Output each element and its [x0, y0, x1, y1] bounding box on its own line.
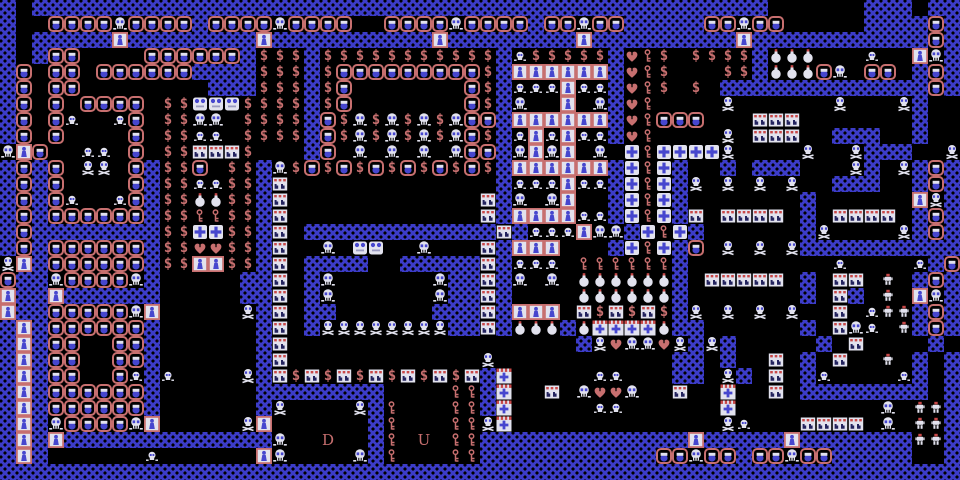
wall-tile: [128, 224, 144, 240]
small-skull: [544, 256, 560, 272]
studded-tile: [752, 128, 768, 144]
potion-bomb: [512, 320, 528, 336]
skull: [512, 96, 528, 112]
wall-tile: [320, 0, 336, 16]
wall-tile: [32, 464, 48, 480]
wall-tile: [496, 320, 512, 336]
small-skull: [736, 416, 752, 432]
monster-face: [768, 448, 784, 464]
floor-tile: [864, 288, 880, 304]
wall-tile: [720, 32, 736, 48]
floor-tile: [144, 144, 160, 160]
key-item: [640, 256, 656, 272]
wall-tile: [128, 32, 144, 48]
monster-face: [16, 192, 32, 208]
wall-tile: [496, 272, 512, 288]
striped-cross-tile: [592, 320, 608, 336]
floor-tile: [912, 0, 928, 16]
cross-tile: [192, 224, 208, 240]
floor-tile: [304, 208, 320, 224]
monster-face: [752, 448, 768, 464]
wall-tile: [864, 80, 880, 96]
floor-tile: [720, 288, 736, 304]
floor-tile: [736, 320, 752, 336]
floor-tile: [160, 320, 176, 336]
locked-door: [48, 432, 64, 448]
wall-tile: [704, 32, 720, 48]
monster-face: [224, 48, 240, 64]
wall-tile: [496, 192, 512, 208]
wall-tile: [864, 128, 880, 144]
wall-tile: [912, 464, 928, 480]
floor-tile: [368, 304, 384, 320]
wall-tile: [752, 32, 768, 48]
floor-tile: [832, 368, 848, 384]
wall-tile: [896, 448, 912, 464]
floor-tile: [736, 112, 752, 128]
studded-tile: [576, 304, 592, 320]
floor-tile: [336, 448, 352, 464]
floor-tile: [560, 368, 576, 384]
wall-tile: [944, 448, 960, 464]
skull-crossbones: [832, 96, 848, 112]
wall-tile: [160, 432, 176, 448]
wall-tile: [640, 448, 656, 464]
key-item: [640, 192, 656, 208]
wall-tile: [736, 432, 752, 448]
monster-face: [128, 192, 144, 208]
wall-tile: [368, 224, 384, 240]
studded-tile: [480, 240, 496, 256]
treasure-money: $: [272, 112, 288, 128]
wall-tile: [592, 432, 608, 448]
skull-crossbones: [320, 320, 336, 336]
floor-tile: [400, 400, 416, 416]
floor-tile: [336, 240, 352, 256]
key-item: [464, 432, 480, 448]
floor-tile: [464, 352, 480, 368]
floor-tile: [896, 352, 912, 368]
wall-tile: [864, 160, 880, 176]
locked-door: [544, 208, 560, 224]
wall-tile: [672, 288, 688, 304]
skull: [640, 336, 656, 352]
wall-tile: [496, 464, 512, 480]
monster-face: [448, 64, 464, 80]
monster-face: [464, 96, 480, 112]
monster-face: [112, 240, 128, 256]
monster-face: [48, 336, 64, 352]
key-item: [448, 384, 464, 400]
floor-tile: [736, 240, 752, 256]
wall-tile: [608, 464, 624, 480]
wall-tile: [256, 160, 272, 176]
wall-tile: [560, 0, 576, 16]
monster-face: [80, 416, 96, 432]
floor-tile: [416, 80, 432, 96]
red-capped-skeleton: [912, 432, 928, 448]
monster-face: [464, 80, 480, 96]
wall-tile: [80, 432, 96, 448]
treasure-money: $: [224, 176, 240, 192]
wall-tile: [448, 288, 464, 304]
floor-tile: [32, 96, 48, 112]
wall-tile: [0, 128, 16, 144]
wall-tile: [496, 208, 512, 224]
wall-tile: [0, 192, 16, 208]
wall-tile: [896, 432, 912, 448]
floor-tile: [224, 400, 240, 416]
wall-tile: [256, 256, 272, 272]
floor-tile: [896, 64, 912, 80]
treasure-money: $: [288, 160, 304, 176]
wall-tile: [304, 48, 320, 64]
skull: [512, 144, 528, 160]
treasure-money: $: [272, 96, 288, 112]
small-skull: [592, 176, 608, 192]
floor-tile: [512, 384, 528, 400]
wall-tile: [608, 432, 624, 448]
wall-tile: [496, 256, 512, 272]
studded-tile: [704, 272, 720, 288]
floor-tile: [832, 160, 848, 176]
monster-face: [96, 400, 112, 416]
locked-door: [560, 96, 576, 112]
wall-tile: [224, 64, 240, 80]
wall-tile: [416, 256, 432, 272]
floor-tile: [560, 416, 576, 432]
floor-tile: [144, 80, 160, 96]
locked-door: [560, 208, 576, 224]
monster-face: [64, 48, 80, 64]
floor-tile: [736, 160, 752, 176]
wall-tile: [432, 0, 448, 16]
monster-face: [96, 304, 112, 320]
studded-tile: [800, 416, 816, 432]
wall-tile: [256, 288, 272, 304]
floor-tile: [752, 144, 768, 160]
cross-tile: [624, 176, 640, 192]
wall-tile: [32, 176, 48, 192]
wall-tile: [496, 448, 512, 464]
monster-face: [400, 160, 416, 176]
monster-face: [48, 240, 64, 256]
small-skull: [864, 320, 880, 336]
floor-tile: [704, 176, 720, 192]
floor-tile: [720, 112, 736, 128]
heart-food: [624, 96, 640, 112]
floor-tile: [96, 112, 112, 128]
floor-tile: [336, 352, 352, 368]
wall-tile: [96, 432, 112, 448]
potion-bomb: [608, 272, 624, 288]
floor-tile: [192, 320, 208, 336]
skull-crossbones: [352, 400, 368, 416]
floor-tile: [864, 400, 880, 416]
wall-tile: [944, 384, 960, 400]
wall-tile: [496, 32, 512, 48]
floor-tile: [928, 448, 944, 464]
skull: [272, 448, 288, 464]
wall-tile: [224, 80, 240, 96]
wall-tile: [0, 48, 16, 64]
monster-face: [96, 384, 112, 400]
floor-tile: [288, 336, 304, 352]
key-item: [384, 432, 400, 448]
floor-tile: [688, 192, 704, 208]
wall-tile: [32, 320, 48, 336]
studded-tile: [848, 208, 864, 224]
treasure-money: $: [160, 256, 176, 272]
potion-bomb: [624, 272, 640, 288]
wall-tile: [32, 0, 48, 16]
wall-tile: [672, 192, 688, 208]
wall-tile: [656, 464, 672, 480]
potion-bomb: [576, 288, 592, 304]
floor-tile: [704, 112, 720, 128]
floor-tile: [336, 400, 352, 416]
wall-tile: [400, 256, 416, 272]
locked-door: [256, 448, 272, 464]
floor-tile: [368, 352, 384, 368]
wall-tile: [816, 432, 832, 448]
game-board[interactable]: $$$$$$$$$$$$$$$$$$$$$$$$$$$$$$$$$$$$$$$$…: [0, 0, 960, 480]
wall-tile: [464, 464, 480, 480]
wall-tile: [336, 256, 352, 272]
potion-bomb: [768, 64, 784, 80]
wall-tile: [144, 208, 160, 224]
cross-tile: [688, 144, 704, 160]
floor-tile: [848, 368, 864, 384]
wall-tile: [912, 96, 928, 112]
wall-tile: [672, 432, 688, 448]
locked-door: [512, 160, 528, 176]
floor-tile: [480, 176, 496, 192]
monster-face: [336, 64, 352, 80]
wall-tile: [448, 320, 464, 336]
studded-tile: [480, 256, 496, 272]
floor-tile: [560, 256, 576, 272]
floor-tile: [592, 416, 608, 432]
floor-tile: [720, 256, 736, 272]
monster-face: [352, 64, 368, 80]
treasure-money: $: [240, 208, 256, 224]
wall-tile: [800, 288, 816, 304]
wall-tile: [688, 16, 704, 32]
monster-face: [48, 80, 64, 96]
wall-tile: [160, 464, 176, 480]
treasure-money: $: [576, 48, 592, 64]
wall-tile: [496, 96, 512, 112]
monster-face: [64, 368, 80, 384]
monster-face: [432, 16, 448, 32]
wall-tile: [816, 336, 832, 352]
floor-tile: [880, 256, 896, 272]
wall-tile: [496, 176, 512, 192]
floor-tile: [480, 336, 496, 352]
small-skull: [912, 256, 928, 272]
wall-tile: [304, 304, 320, 320]
floor-tile: [720, 320, 736, 336]
floor-tile: [864, 112, 880, 128]
wall-tile: [608, 448, 624, 464]
monster-face: [112, 96, 128, 112]
locked-door: [16, 400, 32, 416]
floor-tile: [160, 384, 176, 400]
floor-tile: [336, 272, 352, 288]
small-skull: [576, 208, 592, 224]
treasure-money: $: [736, 64, 752, 80]
wall-tile: [272, 384, 288, 400]
skull-crossbones: [896, 96, 912, 112]
wall-tile: [544, 464, 560, 480]
wall-tile: [304, 144, 320, 160]
locked-door: [208, 256, 224, 272]
floor-tile: [768, 176, 784, 192]
floor-tile: [848, 16, 864, 32]
striped-cross-tile: [608, 320, 624, 336]
floor-tile: [704, 320, 720, 336]
skull: [512, 272, 528, 288]
wall-tile: [672, 352, 688, 368]
skull-crossbones: [720, 240, 736, 256]
locked-door: [528, 64, 544, 80]
cross-tile: [656, 208, 672, 224]
wall-tile: [144, 176, 160, 192]
monster-face: [48, 192, 64, 208]
treasure-money: $: [176, 224, 192, 240]
skull-crossbones: [928, 192, 944, 208]
studded-tile: [272, 240, 288, 256]
floor-tile: [320, 208, 336, 224]
wall-tile: [800, 224, 816, 240]
floor-tile: [528, 336, 544, 352]
wall-tile: [32, 432, 48, 448]
locked-door: [16, 448, 32, 464]
skull-crossbones: [480, 352, 496, 368]
floor-tile: [560, 352, 576, 368]
treasure-money: $: [224, 192, 240, 208]
potion-bomb: [784, 48, 800, 64]
wall-tile: [368, 384, 384, 400]
wall-tile: [304, 320, 320, 336]
wall-tile: [144, 32, 160, 48]
key-item: [448, 416, 464, 432]
wall-tile: [336, 464, 352, 480]
skull: [928, 288, 944, 304]
studded-tile: [848, 336, 864, 352]
wall-tile: [144, 256, 160, 272]
floor-tile: [544, 352, 560, 368]
monster-face: [112, 64, 128, 80]
treasure-money: $: [256, 80, 272, 96]
wall-tile: [304, 224, 320, 240]
floor-tile: [112, 160, 128, 176]
wall-tile: [800, 208, 816, 224]
floor-tile: [304, 352, 320, 368]
wall-tile: [704, 0, 720, 16]
locked-door: [528, 160, 544, 176]
floor-tile: [880, 336, 896, 352]
monster-face: [464, 160, 480, 176]
monster-face: [80, 304, 96, 320]
skull: [208, 112, 224, 128]
floor-tile: [32, 80, 48, 96]
wall-tile: [736, 0, 752, 16]
potion-bomb: [592, 288, 608, 304]
floor-tile: [896, 256, 912, 272]
floor-tile: [400, 144, 416, 160]
monster-face: [336, 16, 352, 32]
wall-tile: [496, 160, 512, 176]
monster-face: [928, 176, 944, 192]
floor-tile: [352, 304, 368, 320]
wall-tile: [944, 32, 960, 48]
floor-tile: [368, 192, 384, 208]
floor-tile: [928, 128, 944, 144]
floor-tile: [736, 96, 752, 112]
wall-tile: [624, 448, 640, 464]
floor-tile: [304, 400, 320, 416]
wall-tile: [352, 384, 368, 400]
wall-tile: [304, 32, 320, 48]
red-capped-skeleton: [880, 304, 896, 320]
floor-tile: [688, 288, 704, 304]
floor-tile: [848, 64, 864, 80]
floor-tile: [832, 48, 848, 64]
monster-face: [64, 400, 80, 416]
wall-tile: [432, 224, 448, 240]
wall-tile: [944, 64, 960, 80]
floor-tile: [368, 96, 384, 112]
wall-tile: [944, 464, 960, 480]
monster-face: [464, 16, 480, 32]
studded-tile: [272, 176, 288, 192]
floor-tile: [624, 352, 640, 368]
wall-tile: [336, 224, 352, 240]
floor-tile: [816, 0, 832, 16]
studded-tile: [368, 368, 384, 384]
floor-tile: [576, 352, 592, 368]
treasure-money: $: [240, 112, 256, 128]
floor-tile: [240, 336, 256, 352]
wall-tile: [384, 224, 400, 240]
floor-tile: [704, 288, 720, 304]
heart-food: [608, 336, 624, 352]
floor-tile: [112, 176, 128, 192]
locked-door: [512, 304, 528, 320]
wall-tile: [432, 256, 448, 272]
floor-tile: [656, 416, 672, 432]
monster-face: [64, 64, 80, 80]
treasure-money: $: [320, 64, 336, 80]
monster-face: [400, 64, 416, 80]
monster-face: [688, 240, 704, 256]
skull: [432, 288, 448, 304]
floor-tile: [816, 192, 832, 208]
wall-tile: [16, 304, 32, 320]
wall-tile: [912, 384, 928, 400]
wall-tile: [864, 176, 880, 192]
wall-tile: [304, 64, 320, 80]
heart-food: [624, 128, 640, 144]
wall-tile: [480, 400, 496, 416]
wall-tile: [400, 32, 416, 48]
wall-tile: [144, 224, 160, 240]
locked-door: [16, 384, 32, 400]
locked-door: [912, 48, 928, 64]
key-item: [608, 256, 624, 272]
